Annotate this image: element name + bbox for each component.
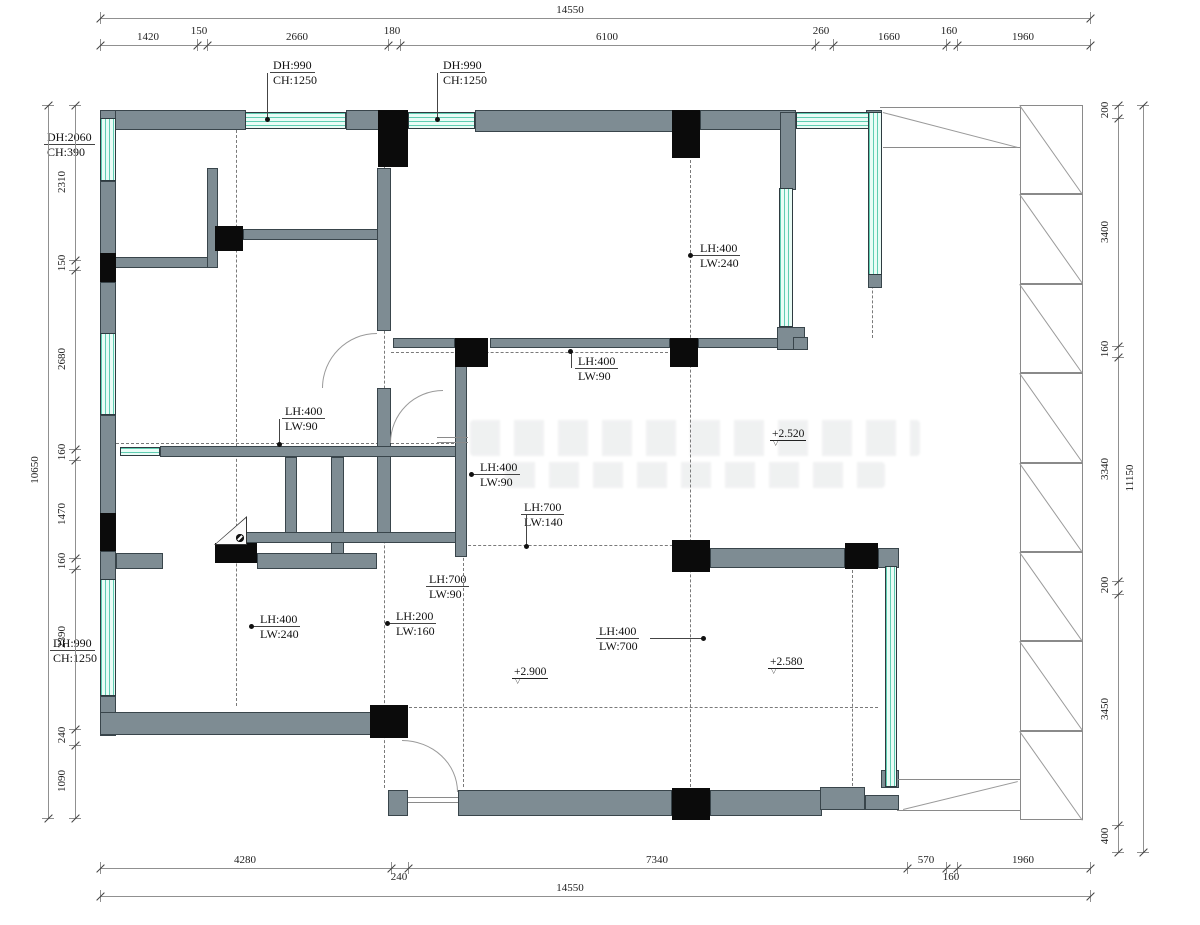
dim-line	[1118, 105, 1119, 852]
wall	[115, 257, 208, 268]
fan-icon	[236, 534, 244, 542]
wall	[100, 415, 116, 514]
dim-line	[100, 18, 1090, 19]
dim-label: 160	[1099, 341, 1111, 358]
wall	[455, 348, 467, 557]
tag-line2: LW:160	[393, 624, 438, 638]
tag-line1: LH:700	[521, 500, 564, 515]
thin-line	[883, 147, 1020, 148]
wall	[285, 457, 297, 533]
column	[672, 540, 710, 572]
thin-line	[880, 107, 1020, 108]
tag-line1: LH:400	[596, 624, 639, 639]
column	[100, 253, 116, 282]
wall	[865, 795, 899, 810]
tag-label: LH:700LW:90	[426, 572, 469, 601]
wall	[490, 338, 670, 348]
wall	[820, 787, 865, 810]
wall	[100, 110, 246, 130]
wall	[207, 168, 218, 268]
dim-label: 180	[384, 25, 401, 37]
window	[245, 112, 346, 129]
dim-label: 160	[56, 553, 68, 570]
dim-label: 1960	[1012, 854, 1034, 866]
column	[215, 226, 243, 251]
column	[215, 543, 257, 563]
dim-label: 1090	[56, 770, 68, 792]
dim-label: 1470	[56, 503, 68, 525]
window	[779, 188, 793, 327]
leader-line	[437, 73, 438, 119]
tag-label: LH:400LW:240	[257, 612, 302, 641]
wall	[780, 112, 796, 190]
tag-label: LH:200LW:160	[393, 609, 438, 638]
dim-label: 200	[1099, 102, 1111, 119]
column	[845, 543, 878, 569]
dim-label: 200	[1099, 577, 1111, 594]
wall	[243, 229, 379, 240]
tag-label: DH:990CH:1250	[270, 58, 320, 87]
level-mark: +2.580▽	[768, 656, 804, 675]
dim-label: 400	[1099, 828, 1111, 845]
tag-label: LH:400LW:90	[477, 460, 520, 489]
dim-label: 3340	[1099, 458, 1111, 480]
window	[100, 333, 116, 415]
dim-label: 240	[391, 871, 408, 883]
leader-dot	[469, 472, 474, 477]
dashed-axis-line	[236, 130, 237, 706]
door-arc	[390, 390, 443, 443]
dim-label: 11150	[1124, 465, 1136, 492]
tag-line1: LH:700	[426, 572, 469, 587]
tag-line1: LH:400	[282, 404, 325, 419]
dim-label: 7340	[646, 854, 668, 866]
diagonal-line	[883, 112, 1018, 148]
wall	[793, 337, 808, 350]
window	[408, 112, 475, 129]
leader-line	[571, 352, 572, 368]
column	[672, 110, 700, 158]
thin-line	[897, 810, 1020, 811]
column	[672, 788, 710, 820]
dim-label: 4280	[234, 854, 256, 866]
tag-line2: LW:240	[257, 627, 302, 641]
dim-label: 150	[191, 25, 208, 37]
dashed-axis-line	[852, 570, 853, 786]
dim-label: 2660	[286, 31, 308, 43]
tag-label: LH:700LW:140	[521, 500, 566, 529]
window	[100, 579, 116, 696]
leader-dot	[701, 636, 706, 641]
tag-label: DH:990CH:1250	[440, 58, 490, 87]
wall	[710, 548, 845, 568]
tag-line1: LH:400	[477, 460, 520, 475]
wall	[100, 282, 116, 334]
wall	[100, 181, 116, 254]
dim-label: 14550	[556, 882, 584, 894]
dim-label: 240	[56, 727, 68, 744]
wall	[698, 338, 778, 348]
dim-label: 160	[943, 871, 960, 883]
dashed-axis-line	[463, 545, 688, 546]
wall	[116, 553, 163, 569]
level-triangle-icon: ▽	[515, 678, 548, 685]
dim-line	[48, 105, 49, 818]
window	[868, 112, 882, 275]
tag-line1: DH:2060	[44, 130, 95, 145]
window	[100, 118, 116, 181]
wall	[100, 712, 374, 735]
wall	[710, 790, 822, 816]
tag-line2: LW:90	[426, 587, 469, 601]
dim-label: 1960	[1012, 31, 1034, 43]
tag-line2: CH:390	[44, 145, 95, 159]
leader-dot	[277, 442, 282, 447]
dim-line	[100, 45, 1090, 46]
wall	[160, 446, 456, 457]
window	[120, 447, 160, 456]
dashed-axis-line	[404, 707, 878, 708]
level-mark: +2.520▽	[770, 428, 806, 447]
column	[670, 338, 698, 367]
wall	[100, 551, 116, 580]
leader-dot	[688, 253, 693, 258]
diagonal-line	[903, 781, 1018, 810]
tag-line2: CH:1250	[440, 73, 490, 87]
thin-line	[408, 797, 458, 798]
dim-line	[100, 868, 1090, 869]
dim-label: 3400	[1099, 221, 1111, 243]
door-arc	[322, 333, 377, 388]
wall	[243, 532, 460, 543]
tag-line2: LW:700	[596, 639, 641, 653]
leader-dot	[524, 544, 529, 549]
tag-label: DH:2060CH:390	[44, 130, 95, 159]
leader-line	[650, 638, 703, 639]
wall	[878, 548, 899, 568]
tag-line1: LH:400	[697, 241, 740, 256]
wall	[377, 168, 391, 331]
thin-line	[408, 802, 458, 803]
dashed-axis-line	[391, 352, 668, 353]
dim-label: 150	[56, 255, 68, 272]
door-arc	[402, 740, 458, 792]
level-triangle-icon: ▽	[771, 668, 804, 675]
wall	[868, 274, 882, 288]
dashed-axis-line	[116, 443, 454, 444]
tag-line1: LH:400	[575, 354, 618, 369]
leader-line	[279, 419, 280, 444]
tag-label: LH:400LW:90	[575, 354, 618, 383]
watermark	[505, 462, 885, 488]
wall	[475, 110, 676, 132]
dim-label: 570	[918, 854, 935, 866]
tag-line2: LW:90	[477, 475, 520, 489]
tag-label: LH:400LW:90	[282, 404, 325, 433]
tag-line2: LW:90	[575, 369, 618, 383]
thin-line	[897, 779, 1020, 780]
dim-line	[100, 896, 1090, 897]
dim-label: 1420	[137, 31, 159, 43]
leader-line	[526, 515, 527, 546]
dim-label: 2310	[56, 171, 68, 193]
window	[885, 566, 897, 787]
dim-label: 3450	[1099, 698, 1111, 720]
leader-dot	[435, 117, 440, 122]
dim-label: 2680	[56, 348, 68, 370]
tag-line2: LW:140	[521, 515, 566, 529]
watermark	[470, 420, 920, 456]
dim-label: 160	[56, 444, 68, 461]
leader-dot	[265, 117, 270, 122]
floor-plan-canvas: DH:990CH:1250DH:990CH:1250DH:2060CH:390L…	[0, 0, 1200, 925]
column	[455, 338, 488, 367]
leader-dot	[568, 349, 573, 354]
dim-label: 6100	[596, 31, 618, 43]
dim-label: 1660	[878, 31, 900, 43]
dim-label: 160	[941, 25, 958, 37]
wall	[393, 338, 455, 348]
tag-label: LH:400LW:240	[697, 241, 742, 270]
wall	[346, 110, 380, 130]
tag-line2: LW:240	[697, 256, 742, 270]
dim-line	[1143, 105, 1144, 852]
dim-label: 14550	[556, 4, 584, 16]
dim-label: 10650	[29, 456, 41, 484]
wall	[257, 553, 377, 569]
wall	[377, 388, 391, 542]
leader-dot	[249, 624, 254, 629]
tag-line2: LW:90	[282, 419, 325, 433]
tag-line2: CH:1250	[270, 73, 320, 87]
tag-line1: DH:990	[270, 58, 315, 73]
column	[370, 705, 408, 738]
tag-line1: DH:990	[440, 58, 485, 73]
leader-dot	[385, 621, 390, 626]
wall	[388, 790, 408, 816]
leader-line	[267, 73, 268, 119]
wall	[458, 790, 672, 816]
level-triangle-icon: ▽	[773, 440, 806, 447]
column	[378, 110, 408, 167]
column	[100, 513, 116, 551]
tag-label: LH:400LW:700	[596, 624, 641, 653]
tag-line1: LH:400	[257, 612, 300, 627]
tag-line1: LH:200	[393, 609, 436, 624]
dim-label: 2390	[56, 626, 68, 648]
level-mark: +2.900▽	[512, 666, 548, 685]
dim-label: 260	[813, 25, 830, 37]
